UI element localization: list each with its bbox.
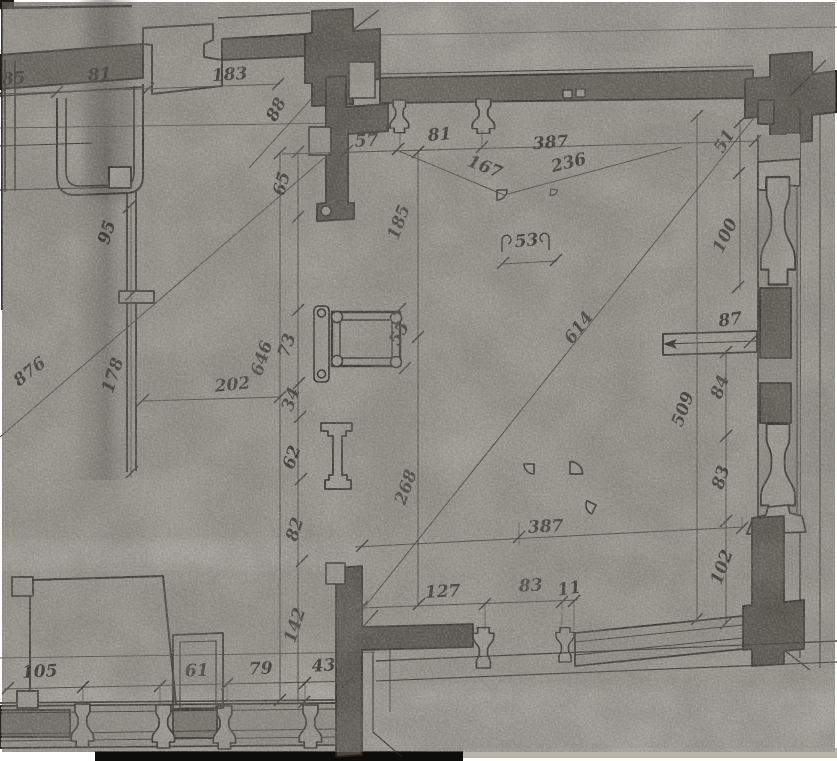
dimension-label: 87 [716,308,743,331]
scan-edge-bar [95,751,463,761]
dimension-label: 83 [517,575,543,596]
dimension-label: 127 [424,581,461,603]
dimension-label: 53 [514,230,540,252]
dimension-label: 202 [213,373,252,397]
wall-poche [760,383,791,423]
dimension-label: 79 [249,659,274,680]
dimension-label: 43 [311,655,336,677]
scanned-floor-plan: 85 81 183 88 57 81 387 167 236 51 65 185… [0,0,837,761]
dimension-label: 387 [532,132,569,154]
dimension-label: 61 [185,661,209,682]
dimension-label: 57 [354,130,379,152]
dimension-label: 11 [556,577,582,600]
floor-plan-drawing: 85 81 183 88 57 81 387 167 236 51 65 185… [0,0,837,761]
dimension-label: 183 [211,64,248,86]
dimension-label: 387 [527,516,564,538]
dimension-label: 81 [426,124,452,146]
wall-poche [760,288,791,358]
wall-poche [173,710,217,738]
dimension-label: 81 [86,64,112,86]
dimension-label: 85 [0,68,26,90]
dimension-label: 105 [21,661,57,683]
wall-corbel-profile [143,24,222,94]
wall-stub [663,331,757,355]
